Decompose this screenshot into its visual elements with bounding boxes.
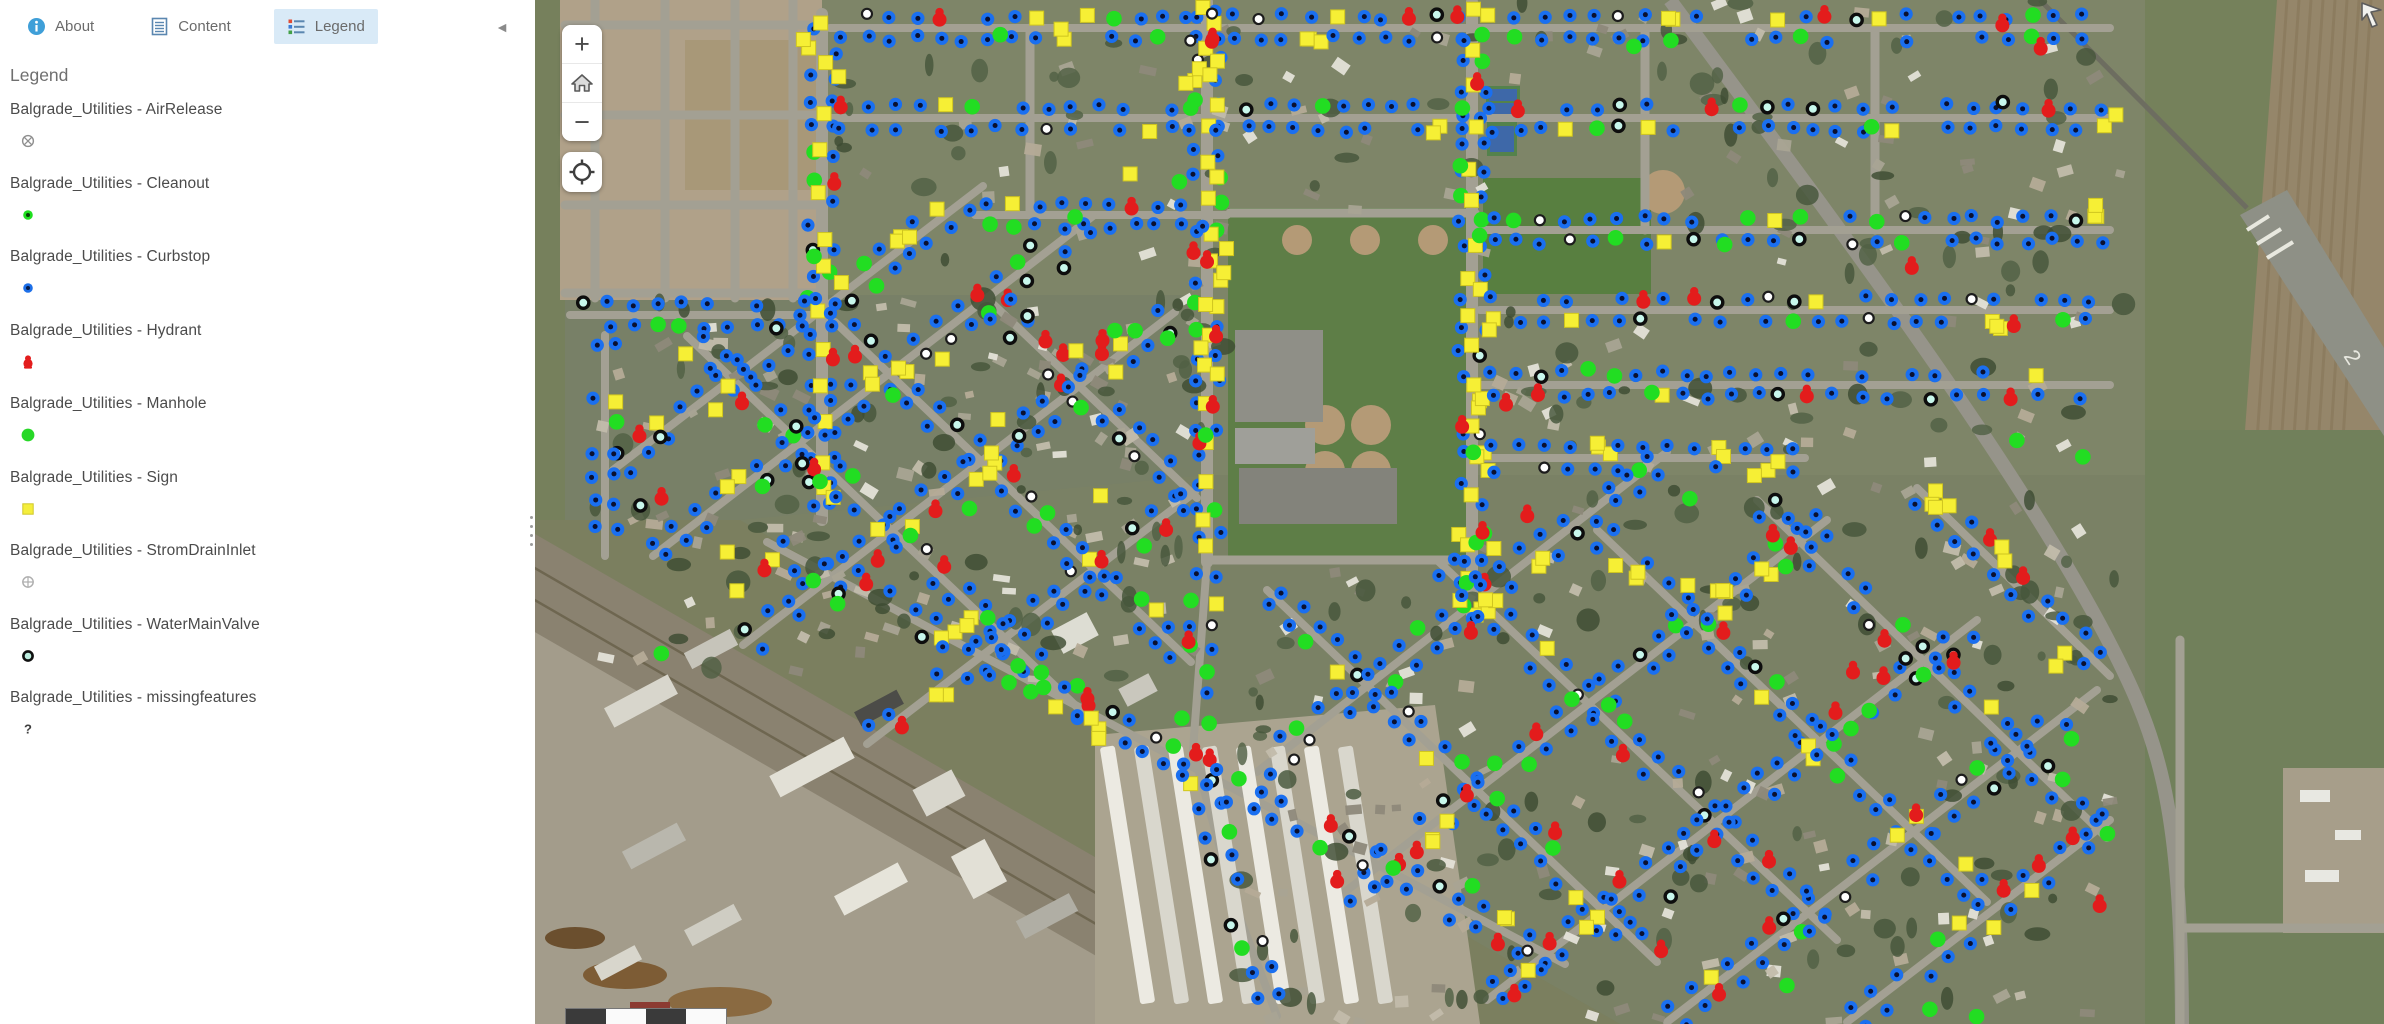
tab-label: Content — [178, 18, 231, 35]
legend-layer-label: Balgrade_Utilities - WaterMainValve — [10, 616, 535, 634]
tab-content[interactable]: Content — [137, 9, 244, 44]
mouse-cursor-icon — [2359, 1, 2384, 31]
legend-layer-label: Balgrade_Utilities - Curbstop — [10, 248, 535, 266]
panel-resize-handle[interactable] — [530, 516, 533, 546]
side-panel: AboutContentLegend ◄ Legend Balgrade_Uti… — [0, 0, 535, 1024]
legend-layer-label: Balgrade_Utilities - Sign — [10, 469, 535, 487]
legend-layer-label: Balgrade_Utilities - Cleanout — [10, 175, 535, 193]
legend-layer-label: Balgrade_Utilities - Manhole — [10, 395, 535, 413]
dot-ring-legend-icon — [19, 279, 535, 297]
document-icon — [150, 17, 169, 36]
tab-label: Legend — [315, 18, 365, 35]
tab-label: About — [55, 18, 94, 35]
square-legend-icon — [19, 500, 535, 518]
zoom-out-button[interactable]: − — [562, 103, 602, 141]
circle-cross-legend-icon — [19, 573, 535, 591]
utility-points-layer — [535, 0, 2384, 1024]
legend-layer-label: Balgrade_Utilities - StromDrainInlet — [10, 542, 535, 560]
legend-item: Balgrade_Utilities - Hydrant — [0, 320, 535, 394]
legend-item: Balgrade_Utilities - Manhole — [0, 393, 535, 467]
zoom-in-button[interactable]: + — [562, 25, 602, 64]
panel-title: Legend — [10, 65, 535, 86]
valve-legend-icon — [19, 647, 535, 665]
home-button[interactable] — [562, 64, 602, 103]
legend-list: Balgrade_Utilities - AirReleaseBalgrade_… — [0, 99, 535, 761]
home-icon — [571, 73, 593, 93]
hydrant-legend-icon — [19, 353, 535, 371]
legend-item: Balgrade_Utilities - StromDrainInlet — [0, 540, 535, 614]
legend-item: Balgrade_Utilities - WaterMainValve — [0, 614, 535, 688]
svg-text:?: ? — [24, 722, 32, 737]
dot-legend-icon — [19, 426, 535, 444]
legend-layer-label: Balgrade_Utilities - AirRelease — [10, 101, 535, 119]
info-icon — [27, 17, 46, 36]
question-legend-icon: ? — [19, 720, 535, 738]
dot-ring-legend-icon — [19, 206, 535, 224]
tab-about[interactable]: About — [14, 9, 107, 44]
legend-item: Balgrade_Utilities - AirRelease — [0, 99, 535, 173]
legend-item: Balgrade_Utilities - Cleanout — [0, 173, 535, 247]
legend-list-icon — [287, 17, 306, 36]
zoom-control-stack: + − — [562, 25, 602, 141]
locate-button[interactable] — [562, 152, 602, 192]
map-canvas[interactable]: 2 + — [535, 0, 2384, 1024]
locate-icon — [569, 159, 595, 185]
tab-legend[interactable]: Legend — [274, 9, 378, 44]
panel-tab-bar: AboutContentLegend — [0, 0, 535, 44]
legend-item: Balgrade_Utilities - missingfeatures? — [0, 687, 535, 761]
app-root: AboutContentLegend ◄ Legend Balgrade_Uti… — [0, 0, 2384, 1024]
legend-item: Balgrade_Utilities - Curbstop — [0, 246, 535, 320]
map-scale-bar — [565, 1008, 727, 1024]
legend-item: Balgrade_Utilities - Sign — [0, 467, 535, 541]
circle-x-legend-icon — [19, 132, 535, 150]
panel-collapse-arrow-icon[interactable]: ◄ — [495, 20, 509, 34]
legend-layer-label: Balgrade_Utilities - missingfeatures — [10, 689, 535, 707]
legend-layer-label: Balgrade_Utilities - Hydrant — [10, 322, 535, 340]
